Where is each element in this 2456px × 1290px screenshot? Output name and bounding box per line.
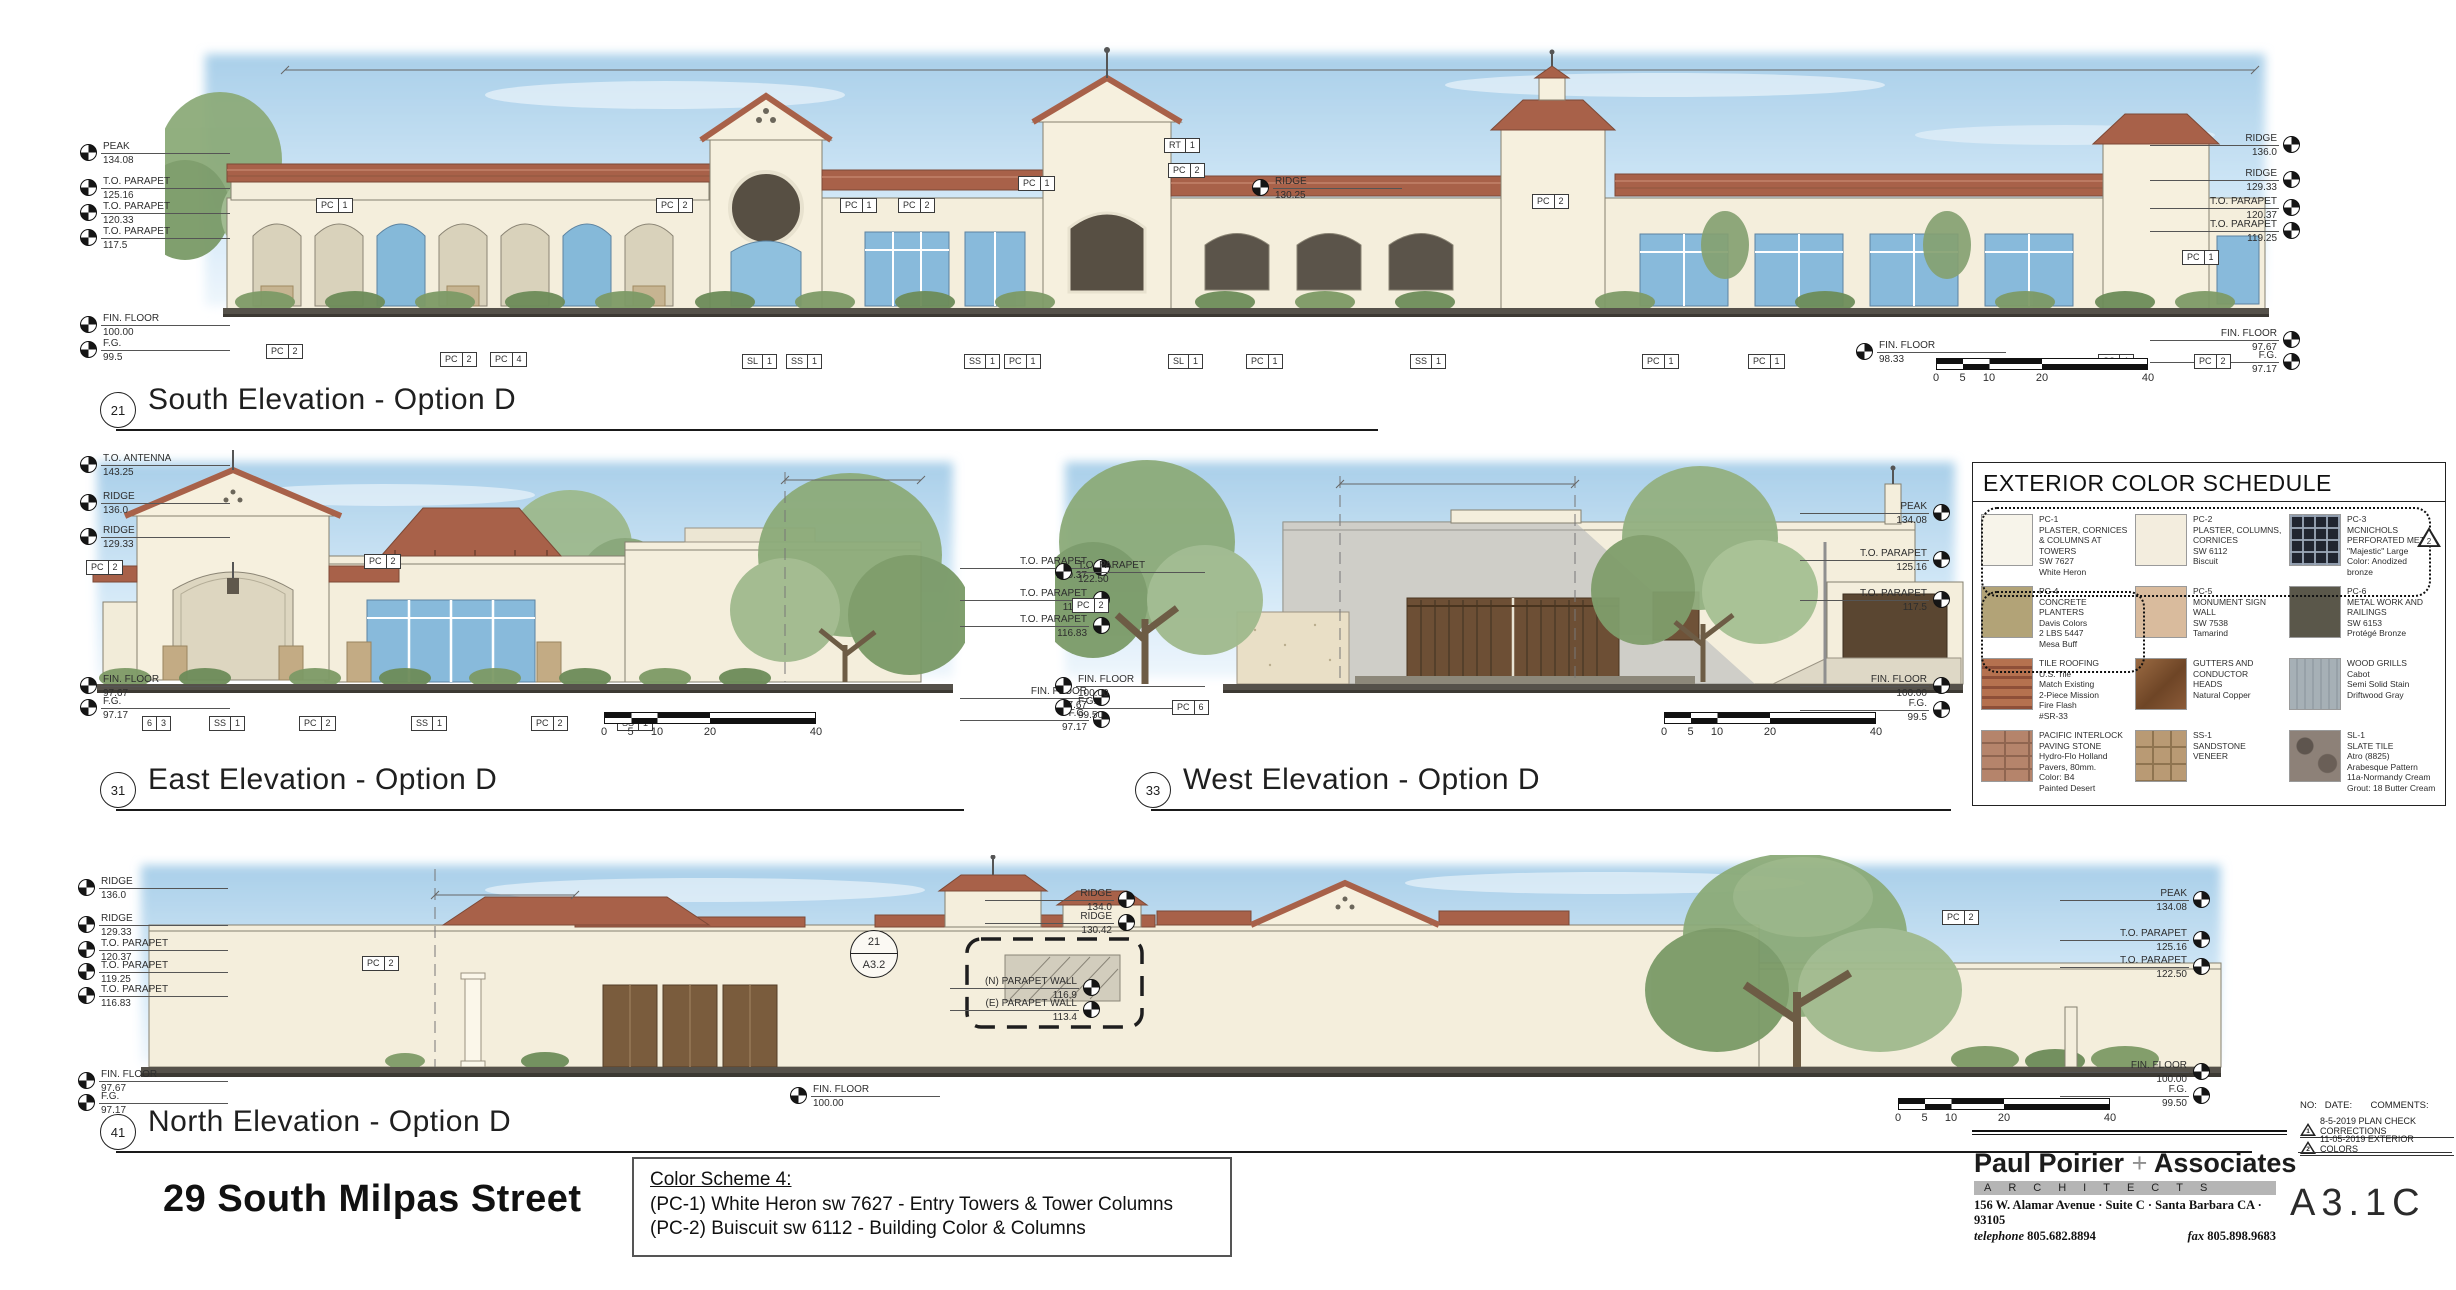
- scale-tick: 20: [704, 726, 716, 738]
- material-tag-number: 3: [156, 717, 170, 730]
- title-text: East Elevation - Option D: [148, 763, 497, 797]
- titleblock-rule: [1972, 1130, 2287, 1135]
- spot-elevation-marker: PEAK134.08: [2060, 888, 2210, 913]
- spot-label: F.G.: [101, 696, 230, 709]
- material-tag-number: 1: [1431, 355, 1445, 368]
- scale-bar-graphic: [1898, 1098, 2110, 1110]
- spot-label: RIDGE: [985, 888, 1114, 901]
- material-tag: PC 6: [1172, 700, 1209, 715]
- material-tag-number: 1: [1664, 355, 1678, 368]
- material-tag-number: 1: [1026, 355, 1040, 368]
- material-tag-code: SL: [743, 355, 762, 368]
- benchmark-icon: [1055, 563, 1072, 580]
- spot-elevation-marker: FIN. FLOOR100.00: [80, 313, 230, 338]
- material-tag-code: PC: [1533, 195, 1554, 208]
- benchmark-icon: [80, 229, 97, 246]
- benchmark-icon: [1083, 1001, 1100, 1018]
- spot-value: 130.42: [985, 924, 1114, 936]
- benchmark-icon: [1933, 504, 1950, 521]
- material-tag: SS 1: [411, 716, 447, 731]
- material-tag-code: PC: [491, 353, 512, 366]
- material-tag: PC 2: [299, 716, 336, 731]
- material-tag: PC 1: [2182, 250, 2219, 265]
- material-tag-code: PC: [300, 717, 321, 730]
- color-swatch: [2135, 730, 2187, 782]
- material-tag-number: 2: [1094, 599, 1108, 612]
- benchmark-icon: [80, 456, 97, 473]
- material-tag-number: 1: [1185, 139, 1199, 152]
- spot-label: PEAK: [1800, 501, 1929, 514]
- spot-value: 99.5: [101, 351, 230, 363]
- spot-label: T.O. PARAPET: [1800, 548, 1929, 561]
- title-text: North Elevation - Option D: [148, 1105, 511, 1139]
- material-tag: SL 1: [1168, 354, 1203, 369]
- sheet-number: A3.1C: [2290, 1182, 2426, 1225]
- benchmark-icon: [1933, 551, 1950, 568]
- scale-tick: 0: [1895, 1112, 1901, 1124]
- north-elevation-drawing: [105, 855, 2265, 1110]
- material-tag-code: PC: [365, 555, 386, 568]
- scale-tick: 5: [1687, 726, 1693, 738]
- material-tag: PC 2: [1168, 163, 1205, 178]
- spot-label: RIDGE: [99, 876, 228, 889]
- telephone-label: telephone: [1974, 1229, 2027, 1243]
- color-swatch-label: SL-1 SLATE TILE Atro (8825) Arabesque Pa…: [2347, 730, 2435, 793]
- material-tag: SL 1: [742, 354, 777, 369]
- spot-value: 129.33: [101, 538, 230, 550]
- spot-value: 120.33: [101, 214, 230, 226]
- spot-elevation-marker: T.O. PARAPET125.16: [80, 176, 230, 201]
- benchmark-icon: [80, 341, 97, 358]
- spot-label: T.O. PARAPET: [2150, 219, 2279, 232]
- title-bubble: 21: [100, 392, 136, 428]
- material-tag-number: 2: [553, 717, 567, 730]
- material-tag-code: PC: [1173, 701, 1194, 714]
- spot-elevation-marker: T.O. PARAPET116.83: [78, 984, 228, 1009]
- firm-address: 156 W. Alamar Avenue · Suite C · Santa B…: [1974, 1198, 2292, 1228]
- material-tag-number: 1: [338, 199, 352, 212]
- spot-label: RIDGE: [101, 525, 230, 538]
- spot-value: 117.5: [101, 239, 230, 251]
- benchmark-icon: [80, 677, 97, 694]
- material-tag-code: PC: [657, 199, 678, 212]
- spot-label: FIN. FLOOR: [101, 674, 230, 687]
- spot-value: 130.25: [1273, 189, 1402, 201]
- material-tag: PC 1: [1748, 354, 1785, 369]
- elevation-title: 31 East Elevation - Option D: [100, 752, 497, 808]
- spot-value: 134.08: [1800, 514, 1929, 526]
- spot-label: FIN. FLOOR: [811, 1084, 940, 1097]
- spot-value: 100.00: [101, 326, 230, 338]
- color-scheme-line: (PC-2) Buiscuit sw 6112 - Building Color…: [650, 1218, 1214, 1240]
- material-tag-number: 1: [1188, 355, 1202, 368]
- material-tag: PC 2: [364, 554, 401, 569]
- material-tag-number: 1: [432, 717, 446, 730]
- benchmark-icon: [1118, 891, 1135, 908]
- material-tag: SS 1: [964, 354, 1000, 369]
- benchmark-icon: [80, 699, 97, 716]
- material-tag: PC 1: [1018, 176, 1055, 191]
- material-tag-code: PC: [1073, 599, 1094, 612]
- material-tag: RT 1: [1164, 138, 1200, 153]
- spot-label: T.O. PARAPET: [101, 226, 230, 239]
- color-schedule-title: EXTERIOR COLOR SCHEDULE: [1973, 463, 2445, 502]
- material-tag-number: 1: [230, 717, 244, 730]
- benchmark-icon: [790, 1087, 807, 1104]
- material-tag-code: PC: [532, 717, 553, 730]
- material-tag-number: 1: [1770, 355, 1784, 368]
- spot-label: T.O. PARAPET: [960, 588, 1089, 601]
- material-tag: PC 2: [266, 344, 303, 359]
- spot-value: 117.5: [1800, 601, 1929, 613]
- spot-label: T.O. PARAPET: [1076, 560, 1205, 573]
- material-tag: PC 2: [1072, 598, 1109, 613]
- benchmark-icon: [2193, 958, 2210, 975]
- spot-label: FIN. FLOOR: [1076, 674, 1205, 687]
- benchmark-icon: [80, 494, 97, 511]
- material-tag-code: PC: [1643, 355, 1664, 368]
- material-tag-code: SS: [965, 355, 985, 368]
- material-tag-number: 6: [1194, 701, 1208, 714]
- material-tag: PC 2: [1532, 194, 1569, 209]
- material-tag: PC 1: [1246, 354, 1283, 369]
- spot-elevation-marker: RIDGE129.33: [78, 913, 228, 938]
- material-tag-number: 2: [386, 555, 400, 568]
- fax-number: 805.898.9683: [2207, 1229, 2276, 1243]
- material-tag: PC 1: [1004, 354, 1041, 369]
- benchmark-icon: [1252, 179, 1269, 196]
- scale-tick: 20: [2036, 372, 2048, 384]
- spot-elevation-marker: FIN. FLOOR100.00: [2060, 1060, 2210, 1085]
- spot-value: 129.33: [99, 926, 228, 938]
- firm-name2: Associates: [2147, 1148, 2296, 1178]
- benchmark-icon: [78, 987, 95, 1004]
- revision-text: 11-05-2019 EXTERIOR COLORS: [2320, 1134, 2454, 1154]
- spot-label: T.O. PARAPET: [99, 938, 228, 951]
- material-tag-code: PC: [2183, 251, 2204, 264]
- spot-label: RIDGE: [101, 491, 230, 504]
- benchmark-icon: [2193, 891, 2210, 908]
- elevation-title: 33 West Elevation - Option D: [1135, 752, 1540, 808]
- scale-tick: 10: [1945, 1112, 1957, 1124]
- benchmark-icon: [1055, 677, 1072, 694]
- material-tag-number: 2: [678, 199, 692, 212]
- spot-elevation-marker: RIDGE130.42: [985, 911, 1135, 936]
- scale-bar: 0 5 10 20 40: [604, 712, 816, 739]
- architects-band: ARCHITECTS: [1974, 1181, 2276, 1195]
- spot-value: 136.0: [99, 889, 228, 901]
- benchmark-icon: [1083, 979, 1100, 996]
- scale-bar-graphic: [1936, 358, 2148, 370]
- benchmark-icon: [2283, 136, 2300, 153]
- spot-label: FIN. FLOOR: [1877, 340, 2006, 353]
- scale-tick: 0: [1933, 372, 1939, 384]
- benchmark-icon: [80, 144, 97, 161]
- material-tag: PC 2: [656, 198, 693, 213]
- spot-elevation-marker: RIDGE129.33: [80, 525, 230, 550]
- scale-tick: 0: [1661, 726, 1667, 738]
- spot-label: FIN. FLOOR: [99, 1069, 228, 1082]
- material-tag-number: 2: [288, 345, 302, 358]
- spot-value: 113.4: [950, 1011, 1079, 1023]
- material-tag: PC 2: [1942, 910, 1979, 925]
- material-tag-code: SS: [412, 717, 432, 730]
- material-tag-code: SL: [1169, 355, 1188, 368]
- material-tag: 6 3: [142, 716, 171, 731]
- spot-value: 116.83: [99, 997, 228, 1009]
- spot-elevation-marker: (E) PARAPET WALL113.4: [950, 998, 1100, 1023]
- benchmark-icon: [78, 916, 95, 933]
- spot-label: F.G.: [2060, 1084, 2189, 1097]
- scale-tick: 10: [1711, 726, 1723, 738]
- spot-elevation-marker: FIN. FLOOR100.00: [790, 1084, 940, 1109]
- color-schedule-item: GUTTERS AND CONDUCTOR HEADS Natural Copp…: [2135, 658, 2283, 721]
- material-tag-number: 2: [1554, 195, 1568, 208]
- spot-value: 136.0: [2150, 146, 2279, 158]
- benchmark-icon: [1933, 591, 1950, 608]
- material-tag: PC 1: [840, 198, 877, 213]
- spot-label: T.O. PARAPET: [101, 201, 230, 214]
- spot-value: 100.00: [811, 1097, 940, 1109]
- material-tag-code: PC: [1749, 355, 1770, 368]
- benchmark-icon: [80, 316, 97, 333]
- spot-value: 122.50: [2060, 968, 2189, 980]
- benchmark-icon: [2283, 331, 2300, 348]
- scale-bar: 0 5 10 20 40: [1898, 1098, 2110, 1125]
- color-swatch: [1981, 730, 2033, 782]
- material-tag: SS 1: [209, 716, 245, 731]
- spot-elevation-marker: T.O. PARAPET116.83: [960, 614, 1110, 639]
- title-bubble: 31: [100, 772, 136, 808]
- spot-value: 134.08: [101, 154, 230, 166]
- spot-label: RIDGE: [2150, 168, 2279, 181]
- material-tag-code: SS: [1411, 355, 1431, 368]
- spot-value: 125.16: [1800, 561, 1929, 573]
- material-tag-code: PC: [841, 199, 862, 212]
- spot-label: FIN. FLOOR: [2060, 1060, 2189, 1073]
- benchmark-icon: [2283, 353, 2300, 370]
- material-tag-code: RT: [1165, 139, 1185, 152]
- spot-elevation-marker: T.O. PARAPET117.5: [1800, 588, 1950, 613]
- telephone-number: 805.682.8894: [2027, 1229, 2096, 1243]
- color-schedule-item: SL-1 SLATE TILE Atro (8825) Arabesque Pa…: [2289, 730, 2437, 793]
- material-tag-number: 4: [512, 353, 526, 366]
- material-tag-code: PC: [363, 957, 384, 970]
- material-tag-code: PC: [87, 561, 108, 574]
- spot-elevation-marker: T.O. ANTENNA143.25: [80, 453, 230, 478]
- material-tag-number: 2: [384, 957, 398, 970]
- spot-elevation-marker: FIN. FLOOR100.00: [1800, 674, 1950, 699]
- material-tag-code: PC: [1005, 355, 1026, 368]
- elevation-title: 21 South Elevation - Option D: [100, 372, 516, 428]
- material-tag-number: 2: [2216, 355, 2230, 368]
- benchmark-icon: [1933, 701, 1950, 718]
- color-scheme-note: Color Scheme 4: (PC-1) White Heron sw 76…: [632, 1157, 1232, 1257]
- benchmark-icon: [1093, 617, 1110, 634]
- material-tag-code: PC: [267, 345, 288, 358]
- material-tag-code: PC: [1169, 164, 1190, 177]
- scale-tick: 5: [627, 726, 633, 738]
- color-swatch-label: PACIFIC INTERLOCK PAVING STONE Hydro-Flo…: [2039, 730, 2123, 793]
- scale-tick: 0: [601, 726, 607, 738]
- color-schedule-item: PACIFIC INTERLOCK PAVING STONE Hydro-Flo…: [1981, 730, 2129, 793]
- material-tag: PC 2: [362, 956, 399, 971]
- spot-elevation-marker: T.O. PARAPET125.16: [1800, 548, 1950, 573]
- detail-sheet: A3.2: [851, 954, 897, 976]
- material-tag-code: PC: [1247, 355, 1268, 368]
- color-swatch: [2289, 658, 2341, 710]
- spot-value: 116.83: [960, 627, 1089, 639]
- spot-label: (N) PARAPET WALL: [950, 976, 1079, 989]
- scale-tick: 5: [1921, 1112, 1927, 1124]
- spot-elevation-marker: RIDGE129.33: [2150, 168, 2300, 193]
- scale-tick: 5: [1959, 372, 1965, 384]
- material-tag-code: PC: [441, 353, 462, 366]
- exterior-color-schedule: EXTERIOR COLOR SCHEDULE PC-1 PLASTER, CO…: [1972, 462, 2446, 806]
- spot-value: 125.16: [2060, 941, 2189, 953]
- material-tag-number: 1: [985, 355, 999, 368]
- material-tag-number: 2: [462, 353, 476, 366]
- scale-tick: 10: [651, 726, 663, 738]
- spot-label: F.G.: [101, 338, 230, 351]
- scale-tick: 20: [1998, 1112, 2010, 1124]
- material-tag-number: 1: [762, 355, 776, 368]
- scale-tick: 40: [1870, 726, 1882, 738]
- architect-block: Paul Poirier + Associates ARCHITECTS 156…: [1974, 1148, 2292, 1244]
- spot-label: T.O. PARAPET: [1800, 588, 1929, 601]
- spot-label: RIDGE: [985, 911, 1114, 924]
- material-tag: PC 4: [490, 352, 527, 367]
- spot-label: RIDGE: [1273, 176, 1402, 189]
- benchmark-icon: [2283, 171, 2300, 188]
- scale-tick: 40: [2104, 1112, 2116, 1124]
- material-tag-number: 2: [1190, 164, 1204, 177]
- benchmark-icon: [80, 528, 97, 545]
- spot-label: FIN. FLOOR: [2150, 328, 2279, 341]
- color-swatch: [2289, 730, 2341, 782]
- spot-value: 117.5: [960, 601, 1089, 613]
- spot-elevation-marker: T.O. PARAPET125.16: [2060, 928, 2210, 953]
- spot-label: FIN. FLOOR: [1800, 674, 1929, 687]
- material-tag-number: 2: [108, 561, 122, 574]
- spot-value: 136.0: [101, 504, 230, 516]
- material-tag-number: 1: [1268, 355, 1282, 368]
- benchmark-icon: [2193, 1087, 2210, 1104]
- spot-value: 125.16: [101, 189, 230, 201]
- detail-number: 21: [851, 931, 897, 954]
- spot-elevation-marker: T.O. PARAPET119.25: [78, 960, 228, 985]
- scale-tick: 10: [1983, 372, 1995, 384]
- benchmark-icon: [1055, 699, 1072, 716]
- spot-label: F.G.: [1800, 698, 1929, 711]
- material-tag: PC 2: [440, 352, 477, 367]
- benchmark-icon: [78, 1072, 95, 1089]
- material-tag-code: PC: [1019, 177, 1040, 190]
- spot-value: 129.33: [2150, 181, 2279, 193]
- spot-label: T.O. PARAPET: [99, 960, 228, 973]
- scale-bar-graphic: [604, 712, 816, 724]
- spot-label: T.O. PARAPET: [960, 614, 1089, 627]
- spot-elevation-marker: RIDGE134.0: [985, 888, 1135, 913]
- firm-name: Paul Poirier: [1974, 1148, 2132, 1178]
- spot-elevation-marker: PEAK134.08: [80, 141, 230, 166]
- benchmark-icon: [2193, 931, 2210, 948]
- material-tag: PC 2: [898, 198, 935, 213]
- spot-value: 119.25: [2150, 232, 2279, 244]
- material-tag-code: 6: [143, 717, 156, 730]
- spot-label: T.O. PARAPET: [101, 176, 230, 189]
- material-tag: PC 2: [2194, 354, 2231, 369]
- material-tag-number: 2: [920, 199, 934, 212]
- color-schedule-item: SS-1 SANDSTONE VENEER: [2135, 730, 2283, 793]
- title-bubble: 33: [1135, 772, 1171, 808]
- spot-elevation-marker: T.O. PARAPET122.50: [2060, 955, 2210, 980]
- scale-tick: 40: [810, 726, 822, 738]
- color-schedule-item: WOOD GRILLS Cabot Semi Solid Stain Drift…: [2289, 658, 2437, 721]
- scale-bar-graphic: [1664, 712, 1876, 724]
- material-tag-code: PC: [899, 199, 920, 212]
- detail-reference-bubble: 21 A3.2: [850, 930, 898, 978]
- scale-bar: 0 5 10 20 40: [1664, 712, 1876, 739]
- material-tag: PC 1: [316, 198, 353, 213]
- material-tag-number: 2: [1964, 911, 1978, 924]
- spot-label: PEAK: [2060, 888, 2189, 901]
- material-tag: SS 1: [1410, 354, 1446, 369]
- benchmark-icon: [78, 879, 95, 896]
- title-text: West Elevation - Option D: [1183, 763, 1540, 797]
- spot-label: FIN. FLOOR: [101, 313, 230, 326]
- spot-elevation-marker: RIDGE136.0: [80, 491, 230, 516]
- spot-elevation-marker: RIDGE136.0: [2150, 133, 2300, 158]
- color-scheme-line: (PC-1) White Heron sw 7627 - Entry Tower…: [650, 1194, 1214, 1216]
- material-tag-code: PC: [317, 199, 338, 212]
- material-tag-code: SS: [787, 355, 807, 368]
- benchmark-icon: [78, 1094, 95, 1111]
- spot-elevation-marker: T.O. PARAPET117.5: [80, 226, 230, 251]
- spot-label: T.O. PARAPET: [2060, 928, 2189, 941]
- material-tag-number: 1: [862, 199, 876, 212]
- color-swatch: [2135, 658, 2187, 710]
- color-swatch-label: GUTTERS AND CONDUCTOR HEADS Natural Copp…: [2193, 658, 2253, 700]
- spot-elevation-marker: RIDGE136.0: [78, 876, 228, 901]
- revision-text: 8-5-2019 PLAN CHECK CORRECTIONS: [2320, 1116, 2454, 1136]
- material-tag: SS 1: [786, 354, 822, 369]
- spot-label: RIDGE: [2150, 133, 2279, 146]
- spot-elevation-marker: PEAK134.08: [1800, 501, 1950, 526]
- material-tag: PC 1: [1642, 354, 1679, 369]
- benchmark-icon: [1118, 914, 1135, 931]
- benchmark-icon: [78, 941, 95, 958]
- spot-label: T.O. ANTENNA: [101, 453, 230, 466]
- spot-elevation-marker: T.O. PARAPET119.25: [2150, 219, 2300, 244]
- elevation-title: 41 North Elevation - Option D: [100, 1094, 511, 1150]
- benchmark-icon: [1856, 343, 1873, 360]
- spot-value: 97.17: [960, 721, 1089, 733]
- revision-cloud: [1981, 507, 2431, 597]
- scale-bar: 0 5 10 20 40: [1936, 358, 2148, 385]
- firm-plus: +: [2132, 1148, 2148, 1178]
- spot-label: PEAK: [101, 141, 230, 154]
- benchmark-icon: [2283, 222, 2300, 239]
- benchmark-icon: [2283, 199, 2300, 216]
- scale-tick: 20: [1764, 726, 1776, 738]
- spot-value: 122.50: [1076, 573, 1205, 585]
- spot-elevation-marker: T.O. PARAPET120.37: [2150, 196, 2300, 221]
- material-tag-number: 1: [1040, 177, 1054, 190]
- benchmark-icon: [1933, 677, 1950, 694]
- spot-label: RIDGE: [99, 913, 228, 926]
- material-tag-code: PC: [1943, 911, 1964, 924]
